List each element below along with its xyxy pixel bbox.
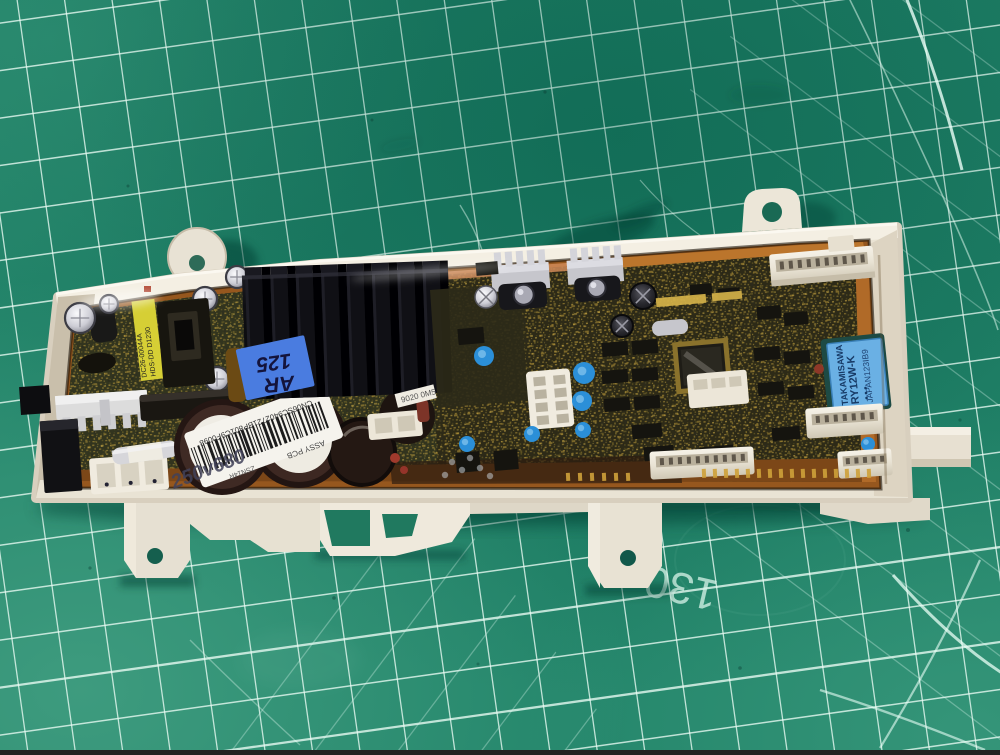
svg-text:AR: AR xyxy=(262,371,296,397)
